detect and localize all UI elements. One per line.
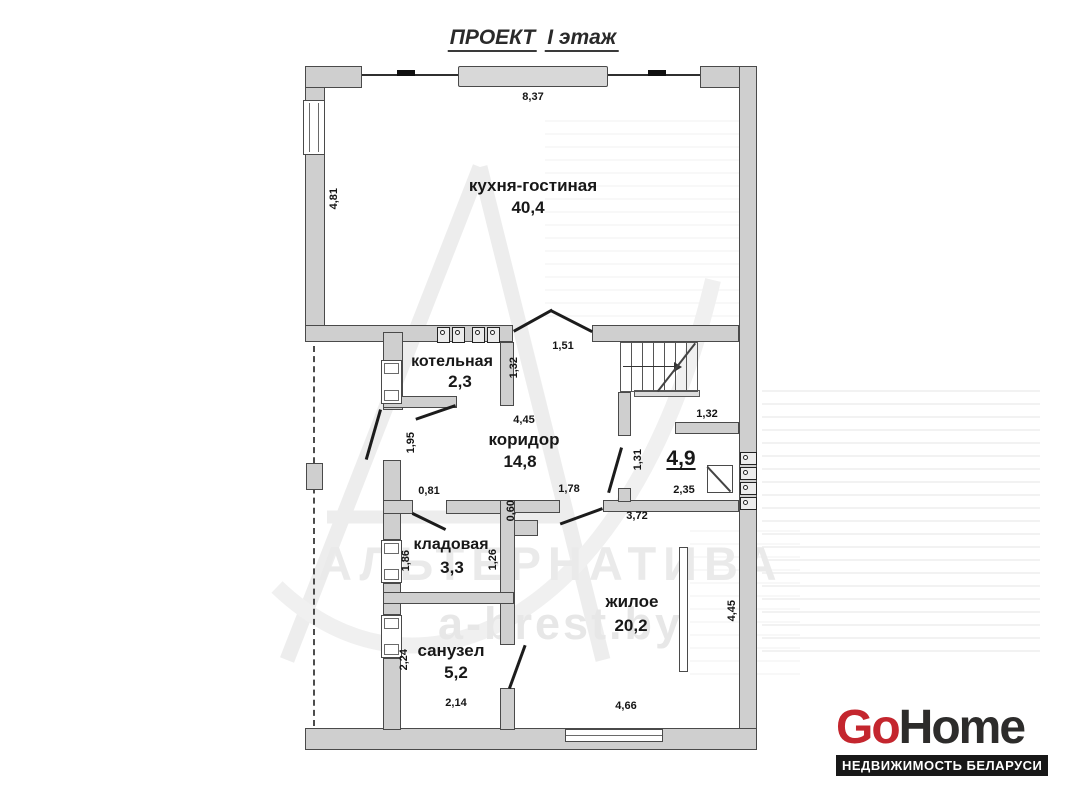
window-pantry: [381, 540, 402, 583]
room-label-kitchen: кухня-гостиная: [469, 176, 597, 196]
equipment-box: [740, 452, 757, 465]
wall-hall-left-upper: [618, 392, 631, 436]
title-floor: I этаж: [545, 26, 618, 52]
equipment-box: [437, 327, 450, 343]
dim-pantry-right: 1,26: [487, 549, 499, 570]
wall-corridor-bottom-c: [514, 500, 560, 513]
room-label-pantry: кладовая: [413, 536, 488, 554]
brand-home: Home: [899, 701, 1024, 754]
shower-cabin: [707, 465, 733, 493]
title-project: ПРОЕКТ: [448, 26, 537, 52]
window-top: [458, 66, 608, 87]
wall-pantry-right-lower: [500, 688, 515, 730]
room-area-living: 20,2: [614, 616, 647, 636]
shower-diagonal: [707, 466, 732, 492]
wall-kitchen-bottom-right: [592, 325, 739, 342]
window-boiler: [381, 360, 402, 404]
window-kitchen-left: [303, 100, 325, 155]
room-area-bathroom: 5,2: [444, 663, 468, 683]
staircase: [620, 342, 698, 392]
dim-pantry-door: 0,81: [418, 485, 439, 497]
dim-pantry-left: 1,86: [400, 550, 412, 571]
wall-top-left-block: [305, 66, 362, 88]
brand-wordmark: GoHome: [836, 704, 1048, 752]
equipment-box: [740, 497, 757, 510]
dim-bathroom-bottom: 2,14: [445, 697, 466, 709]
page-title: ПРОЕКТI этаж: [448, 26, 619, 50]
stairs-cut-line: [657, 343, 696, 392]
dim-living-door: 1,78: [558, 483, 579, 495]
equipment-box: [472, 327, 485, 343]
wall-hall-stub-top: [675, 422, 739, 434]
dim-top-width: 8,37: [522, 91, 543, 103]
wall-pantry-bottom: [383, 592, 514, 604]
dim-living-right: 4,45: [726, 600, 738, 621]
room-area-kitchen: 40,4: [511, 198, 544, 218]
dim-living-bottom: 4,66: [615, 700, 636, 712]
brand-logo: GoHome НЕДВИЖИМОСТЬ БЕЛАРУСИ: [836, 704, 1048, 776]
wall-top-break-left: [397, 70, 415, 76]
brand-go: Go: [836, 701, 899, 754]
room-area-boiler: 2,3: [448, 372, 472, 392]
dim-kitchen-door: 1,51: [552, 340, 573, 352]
dim-hall-left: 1,31: [632, 449, 644, 470]
wall-pantry-right-upper: [500, 500, 515, 645]
dim-living-top: 3,72: [626, 510, 647, 522]
porch-column: [306, 463, 323, 490]
wall-pantry-jog: [514, 520, 538, 536]
room-label-boiler: котельная: [411, 353, 493, 371]
living-partition: [679, 547, 688, 672]
equipment-box: [452, 327, 465, 343]
wall-right-exterior: [739, 66, 757, 750]
room-label-living: жилое: [606, 592, 659, 612]
brand-tagline: НЕДВИЖИМОСТЬ БЕЛАРУСИ: [836, 755, 1048, 776]
dim-hall-width: 2,35: [673, 484, 694, 496]
equipment-box: [487, 327, 500, 343]
equipment-box: [740, 467, 757, 480]
porch-boundary-dashed: [313, 346, 315, 726]
dim-kitchen-left: 4,81: [328, 188, 340, 209]
wall-top-break-right: [648, 70, 666, 76]
wall-bottom-exterior: [305, 728, 757, 750]
equipment-box: [740, 482, 757, 495]
room-label-bathroom: санузел: [417, 641, 484, 661]
room-area-hall: 4,9: [666, 447, 695, 471]
room-area-pantry: 3,3: [440, 558, 464, 578]
wall-hall-left-lower: [618, 488, 631, 502]
watermark-hatch: [762, 390, 1040, 660]
dim-stair-stub: 1,32: [696, 408, 717, 420]
dim-bathroom-left: 2,24: [398, 649, 410, 670]
window-living-bottom: [565, 729, 663, 742]
wall-corridor-bottom-a: [383, 500, 413, 514]
dim-corridor-left: 1,95: [405, 432, 417, 453]
dim-pantry-jog: 0,60: [505, 500, 517, 521]
room-label-corridor: коридор: [488, 430, 559, 450]
stairs-direction-arrow: [623, 366, 675, 367]
room-area-corridor: 14,8: [503, 452, 536, 472]
floor-plan-page: АЛЬТЕРНАТИВА a-brest.by ПРОЕКТI этаж: [0, 0, 1068, 800]
dim-boiler-right: 1,32: [508, 357, 520, 378]
dim-corridor-width: 4,45: [513, 414, 534, 426]
